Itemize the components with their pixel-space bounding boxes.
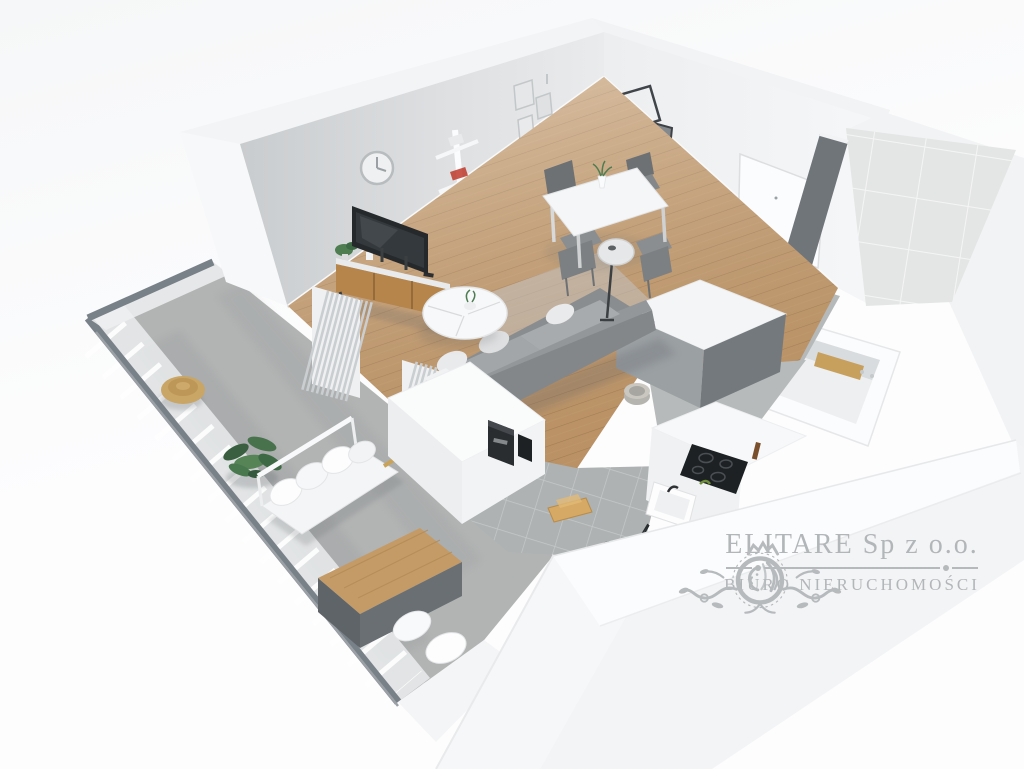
floorplan-scene: ELITARE Sp z o.o. BIURO NIERUCHOMOŚCI: [0, 0, 1024, 769]
crown: [748, 543, 777, 554]
door-peephole: [775, 197, 778, 200]
table-vase: [464, 302, 476, 310]
flourish-right: [783, 568, 842, 609]
watermark: ELITARE Sp z o.o. BIURO NIERUCHOMOŚCI: [672, 528, 1024, 595]
flourish-left: [678, 568, 737, 609]
lion-crest-emblem: [672, 528, 848, 646]
lion-head: [749, 563, 777, 591]
divider-dot: [943, 565, 949, 571]
divider-line: [952, 567, 978, 569]
wicker-pouf: [161, 376, 205, 404]
floor-plan-render: [0, 0, 1024, 769]
crest-ring-outer: [733, 553, 787, 607]
laundry-basket: [624, 383, 650, 405]
wall-clock: [361, 152, 393, 184]
